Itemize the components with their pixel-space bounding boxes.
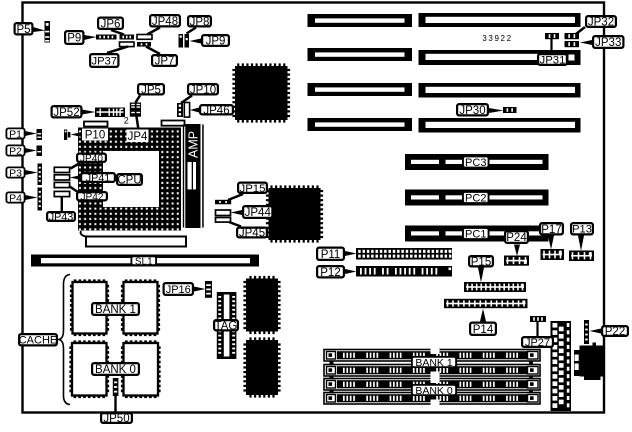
- svg-text:P17: P17: [541, 224, 561, 236]
- svg-text:JP30: JP30: [459, 105, 485, 117]
- svg-text:P3: P3: [9, 167, 22, 179]
- svg-text:SL1: SL1: [135, 256, 153, 267]
- svg-text:JP43: JP43: [49, 211, 74, 223]
- svg-text:P2: P2: [9, 145, 22, 157]
- svg-text:JP27: JP27: [525, 337, 550, 349]
- svg-text:P14: P14: [473, 324, 494, 336]
- svg-text:PC3: PC3: [465, 157, 486, 169]
- svg-text:JP15: JP15: [240, 183, 266, 195]
- svg-text:P1: P1: [9, 128, 22, 140]
- svg-text:JP5: JP5: [141, 84, 161, 96]
- svg-text:JP40: JP40: [80, 153, 103, 164]
- svg-text:BANK 0: BANK 0: [95, 364, 136, 376]
- svg-text:CACHE: CACHE: [19, 335, 58, 347]
- svg-text:P22: P22: [605, 326, 625, 338]
- svg-text:P10: P10: [85, 130, 105, 142]
- svg-text:JP8: JP8: [190, 16, 210, 28]
- svg-text:P9: P9: [67, 33, 81, 45]
- svg-text:JP6: JP6: [101, 18, 121, 30]
- svg-text:JP46: JP46: [203, 105, 229, 117]
- svg-text:AMP: AMP: [186, 131, 200, 158]
- svg-text:JP50: JP50: [103, 413, 129, 425]
- svg-text:JP7: JP7: [155, 56, 175, 68]
- svg-text:P4: P4: [9, 192, 22, 204]
- svg-text:JP52: JP52: [53, 107, 79, 119]
- svg-text:JP44: JP44: [245, 207, 272, 219]
- svg-text:P13: P13: [572, 224, 592, 236]
- svg-text:JP16: JP16: [166, 284, 191, 296]
- svg-text:BANK 0: BANK 0: [415, 385, 453, 397]
- svg-text:JP45: JP45: [239, 228, 265, 240]
- svg-text:P11: P11: [321, 249, 341, 261]
- svg-text:PC2: PC2: [465, 192, 486, 204]
- svg-text:JP9: JP9: [206, 36, 226, 48]
- svg-text:JP37: JP37: [92, 56, 118, 68]
- svg-text:33922: 33922: [482, 34, 512, 43]
- svg-text:JP31: JP31: [540, 55, 566, 67]
- svg-text:JP10: JP10: [190, 84, 216, 96]
- svg-text:P15: P15: [471, 256, 491, 268]
- svg-text:BANK 1: BANK 1: [415, 357, 453, 369]
- svg-text:TAG: TAG: [215, 320, 238, 332]
- svg-text:JP32: JP32: [588, 17, 614, 29]
- svg-text:JP41: JP41: [86, 172, 111, 184]
- svg-text:JP33: JP33: [595, 37, 621, 49]
- svg-text:BANK 1: BANK 1: [95, 304, 136, 316]
- svg-text:2: 2: [124, 116, 129, 126]
- svg-text:P12: P12: [320, 267, 340, 279]
- svg-text:P5: P5: [16, 24, 30, 36]
- svg-text:PC1: PC1: [465, 228, 486, 240]
- svg-text:JP42: JP42: [80, 192, 103, 203]
- svg-text:P24: P24: [506, 232, 527, 244]
- svg-text:JP4: JP4: [128, 131, 148, 143]
- svg-text:CPU: CPU: [117, 175, 141, 187]
- svg-text:JP48: JP48: [152, 16, 178, 28]
